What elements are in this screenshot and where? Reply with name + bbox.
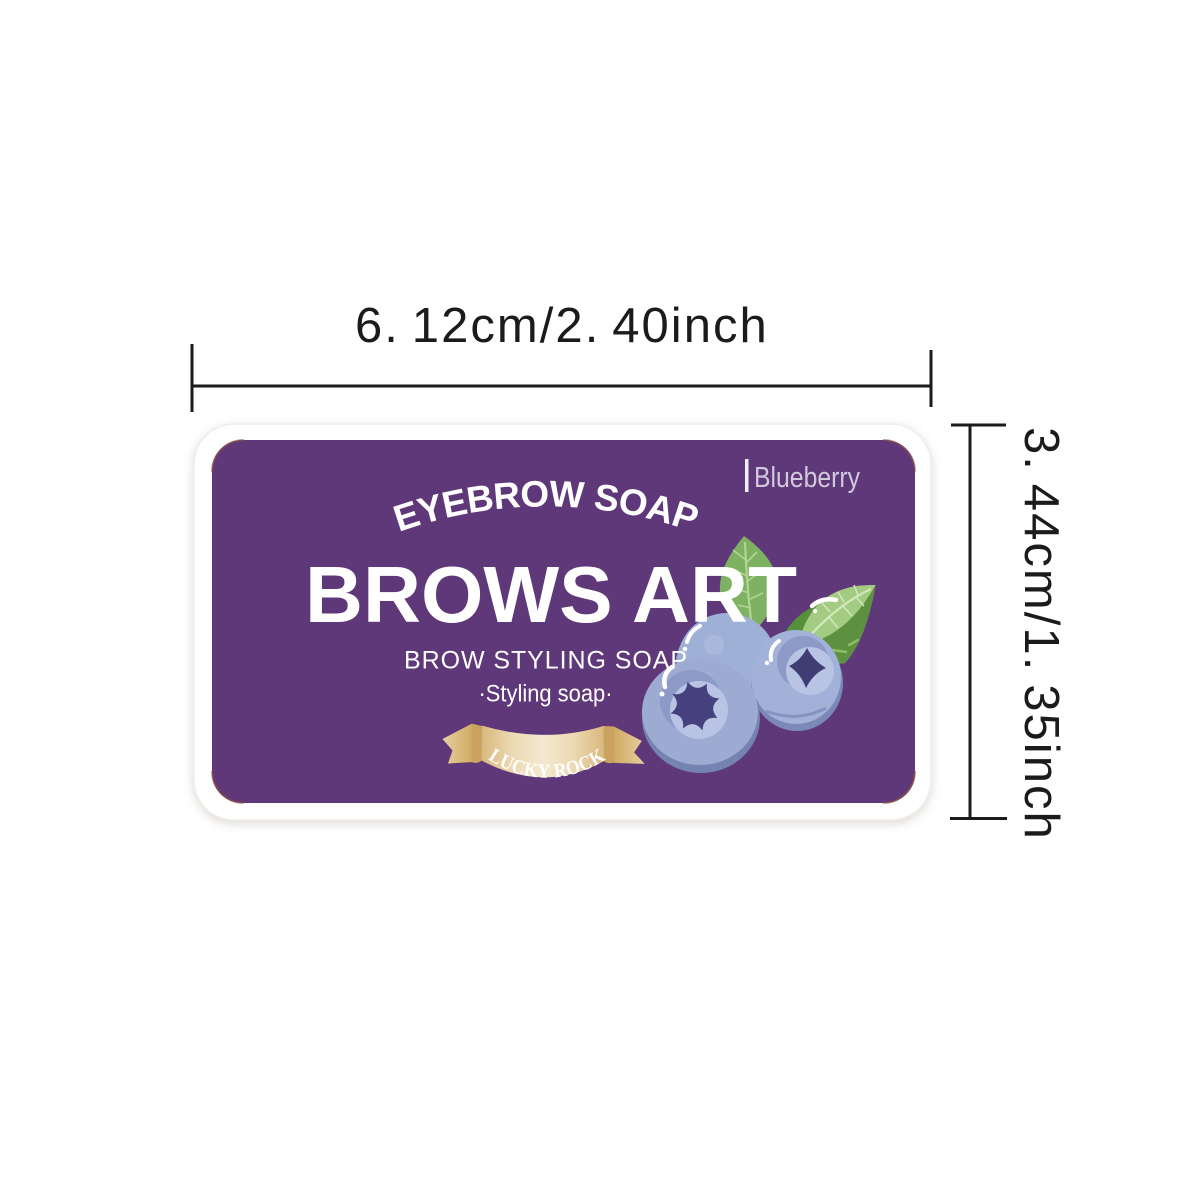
svg-text:6. 12cm/2. 40inch: 6. 12cm/2. 40inch — [355, 299, 769, 353]
svg-text:·Styling soap·: ·Styling soap· — [479, 681, 613, 708]
svg-text:Blueberry: Blueberry — [754, 462, 860, 494]
svg-text:3. 44cm/1. 35inch: 3. 44cm/1. 35inch — [1014, 427, 1068, 841]
svg-text:BROW STYLING SOAP: BROW STYLING SOAP — [404, 647, 687, 675]
svg-text:BROWS ART: BROWS ART — [305, 550, 797, 639]
